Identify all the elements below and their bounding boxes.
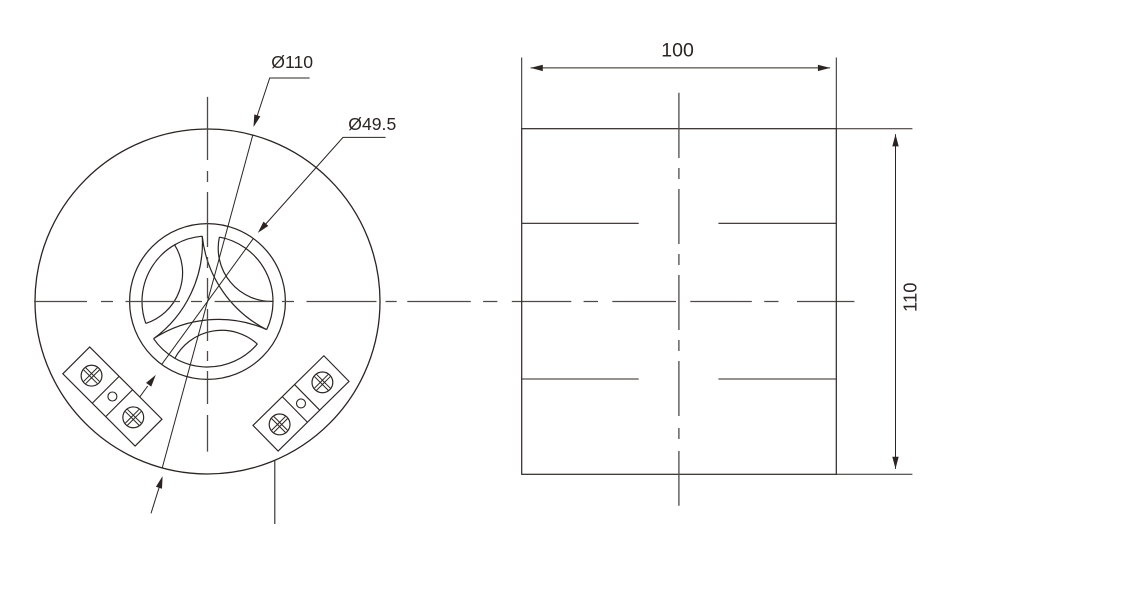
svg-text:110: 110 [899,282,920,312]
svg-text:Ø49.5: Ø49.5 [348,114,396,134]
svg-text:Ø110: Ø110 [271,52,313,72]
svg-text:100: 100 [661,40,694,62]
